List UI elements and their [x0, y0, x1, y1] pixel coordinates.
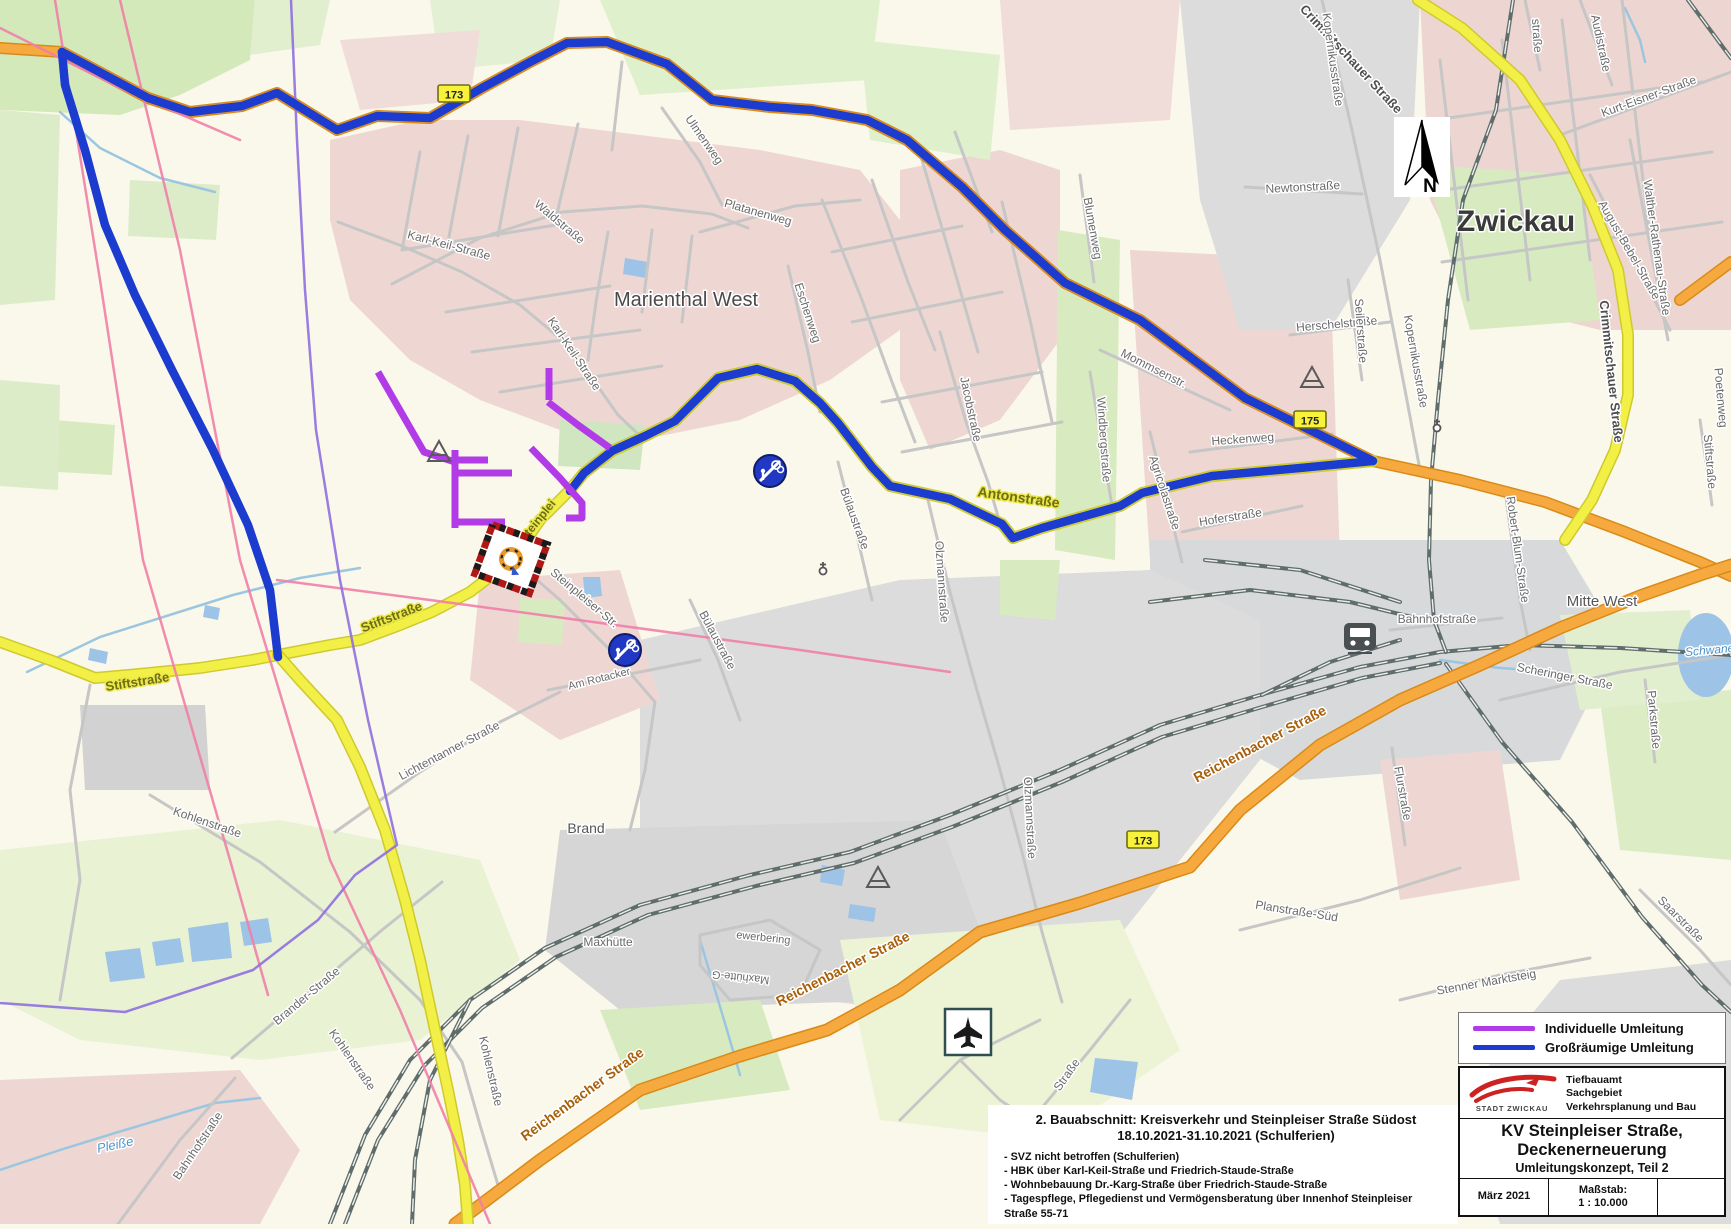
water-pond-blob-3: [188, 922, 232, 962]
scale-value: 1 : 10.000: [1578, 1197, 1628, 1210]
dept-line3: Verkehrsplanung und Bau: [1566, 1101, 1720, 1114]
detour-sign-icon: [609, 634, 641, 666]
legend-swatch-purple: [1473, 1026, 1535, 1031]
area-green-top2: [600, 0, 880, 95]
area-gray-halde: [80, 705, 210, 790]
info-item: - HBK über Karl-Keil-Straße und Friedric…: [1004, 1164, 1448, 1178]
area-green-pond-w: [55, 420, 115, 475]
svg-text:173: 173: [445, 90, 463, 102]
area-green-left-mid2: [0, 380, 60, 490]
title-block-header: STADT ZWICKAU Tiefbauamt Sachgebiet Verk…: [1460, 1068, 1724, 1119]
map-subtitle: Umleitungskonzept, Teil 2: [1515, 1161, 1668, 1175]
agency-name: STADT ZWICKAU: [1476, 1104, 1548, 1113]
construction-info-box: 2. Bauabschnitt: Kreisverkehr und Steinp…: [988, 1105, 1458, 1224]
water-pond-blob-4: [240, 918, 272, 946]
legend-item-grossraeumige: Großräumige Umleitung: [1459, 1040, 1725, 1055]
water-pond-blob-2: [152, 938, 184, 966]
logo-swoosh-icon: [1466, 1073, 1558, 1103]
info-heading-line2: 18.10.2021-31.10.2021 (Schulferien): [1004, 1128, 1448, 1144]
empty-cell: [1658, 1179, 1724, 1215]
map-title-line1: KV Steinpleiser Straße,: [1501, 1122, 1683, 1140]
legend-swatch-blue: [1473, 1045, 1535, 1050]
svg-text:175: 175: [1301, 416, 1319, 428]
map-date: März 2021: [1460, 1179, 1549, 1215]
map-label-zwickau: Zwickau: [1457, 205, 1575, 238]
area-green-right: [1600, 690, 1731, 860]
info-item: - Tagespflege, Pflegedienst und Vermögen…: [1004, 1192, 1448, 1221]
map-title-line2: Deckenerneuerung: [1517, 1141, 1666, 1159]
title-block: STADT ZWICKAU Tiefbauamt Sachgebiet Verk…: [1458, 1066, 1726, 1217]
svg-text:173: 173: [1134, 836, 1152, 848]
area-pink-top-right: [1000, 0, 1180, 130]
airplane-icon: [945, 1009, 991, 1055]
area-green-w: [0, 110, 60, 305]
route-badge-173-0: 173: [438, 85, 470, 102]
area-green-anton: [1000, 560, 1060, 620]
north-arrow-icon: N: [1394, 117, 1450, 197]
stadt-zwickau-logo: STADT ZWICKAU: [1460, 1068, 1564, 1118]
info-item: - Wohnbebauung Dr.-Karg-Straße über Frie…: [1004, 1178, 1448, 1192]
route-badge-175-1: 175: [1294, 411, 1326, 428]
church-icon: [820, 562, 827, 575]
area-green-center: [518, 598, 565, 645]
water-pond-blob-1: [105, 948, 145, 982]
info-item: - SVZ nicht betroffen (Schulferien): [1004, 1150, 1448, 1164]
map-label-brand: Brand: [567, 820, 604, 836]
legend-label: Großräumige Umleitung: [1545, 1040, 1694, 1055]
train-station-icon: [1344, 623, 1376, 653]
dept-line2: Sachgebiet: [1566, 1087, 1720, 1100]
dept-line1: Tiefbauamt: [1566, 1074, 1720, 1087]
map-label-mitte-west: Mitte West: [1567, 593, 1638, 610]
route-badge-173-2: 173: [1127, 831, 1159, 848]
map-label-straße: straße: [1529, 18, 1545, 53]
detour-sign-icon: [754, 455, 786, 487]
scale-label: Maßstab:: [1579, 1184, 1627, 1197]
svg-text:N: N: [1423, 176, 1437, 197]
church-icon: [1434, 419, 1441, 432]
legend-box: Individuelle Umleitung Großräumige Umlei…: [1458, 1012, 1726, 1064]
area-residential-sw: [0, 1070, 300, 1224]
map-label-marienthal-west: Marienthal West: [614, 289, 759, 311]
legend-item-individuelle: Individuelle Umleitung: [1459, 1021, 1725, 1036]
legend-label: Individuelle Umleitung: [1545, 1021, 1684, 1036]
info-heading-line1: 2. Bauabschnitt: Kreisverkehr und Steinp…: [1004, 1112, 1448, 1128]
map-label-bahnhofstraße: Bahnhofstraße: [1398, 612, 1477, 626]
map-label-maxhütte: Maxhütte: [583, 935, 633, 949]
